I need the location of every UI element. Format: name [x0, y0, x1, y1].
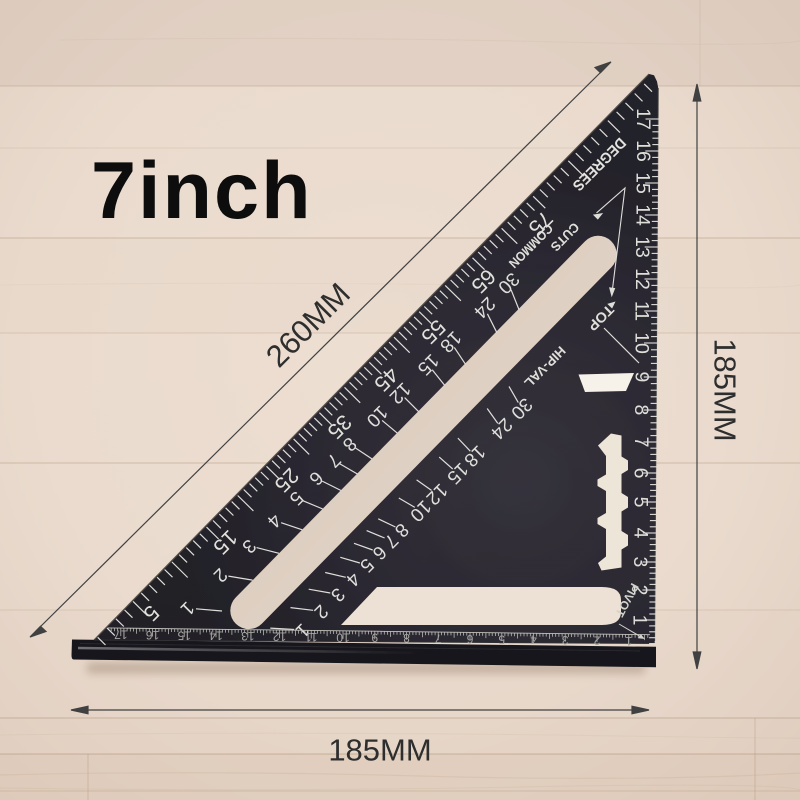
- svg-text:1: 1: [625, 634, 632, 648]
- svg-text:15: 15: [632, 172, 654, 194]
- svg-text:11: 11: [631, 301, 653, 321]
- svg-text:17: 17: [632, 108, 654, 130]
- svg-text:13: 13: [631, 236, 653, 258]
- svg-text:185MM: 185MM: [328, 733, 431, 768]
- svg-text:8: 8: [630, 405, 652, 416]
- svg-text:15: 15: [177, 628, 191, 642]
- svg-text:12: 12: [273, 630, 287, 644]
- svg-text:7: 7: [435, 632, 442, 646]
- svg-text:5: 5: [498, 632, 505, 646]
- svg-text:16: 16: [632, 140, 654, 162]
- svg-text:3: 3: [629, 557, 651, 568]
- svg-text:14: 14: [631, 204, 653, 226]
- svg-text:5: 5: [630, 497, 652, 508]
- svg-text:16: 16: [146, 628, 160, 642]
- svg-text:2: 2: [593, 634, 600, 648]
- svg-text:6: 6: [466, 632, 473, 646]
- svg-text:12: 12: [631, 268, 653, 290]
- svg-text:11: 11: [305, 630, 318, 644]
- svg-text:7inch: 7inch: [91, 146, 313, 236]
- svg-text:10: 10: [336, 630, 350, 644]
- svg-text:7: 7: [630, 437, 652, 448]
- svg-text:4: 4: [629, 528, 651, 539]
- svg-text:3: 3: [562, 633, 569, 647]
- svg-text:9: 9: [630, 372, 652, 383]
- svg-text:1: 1: [629, 615, 651, 626]
- svg-text:13: 13: [241, 629, 255, 643]
- svg-text:14: 14: [209, 629, 223, 643]
- svg-text:10: 10: [631, 332, 653, 354]
- svg-text:6: 6: [630, 468, 652, 479]
- svg-text:185MM: 185MM: [708, 338, 743, 441]
- svg-text:17: 17: [114, 628, 128, 642]
- svg-text:4: 4: [530, 633, 537, 647]
- svg-text:9: 9: [371, 631, 378, 645]
- svg-text:8: 8: [403, 631, 410, 645]
